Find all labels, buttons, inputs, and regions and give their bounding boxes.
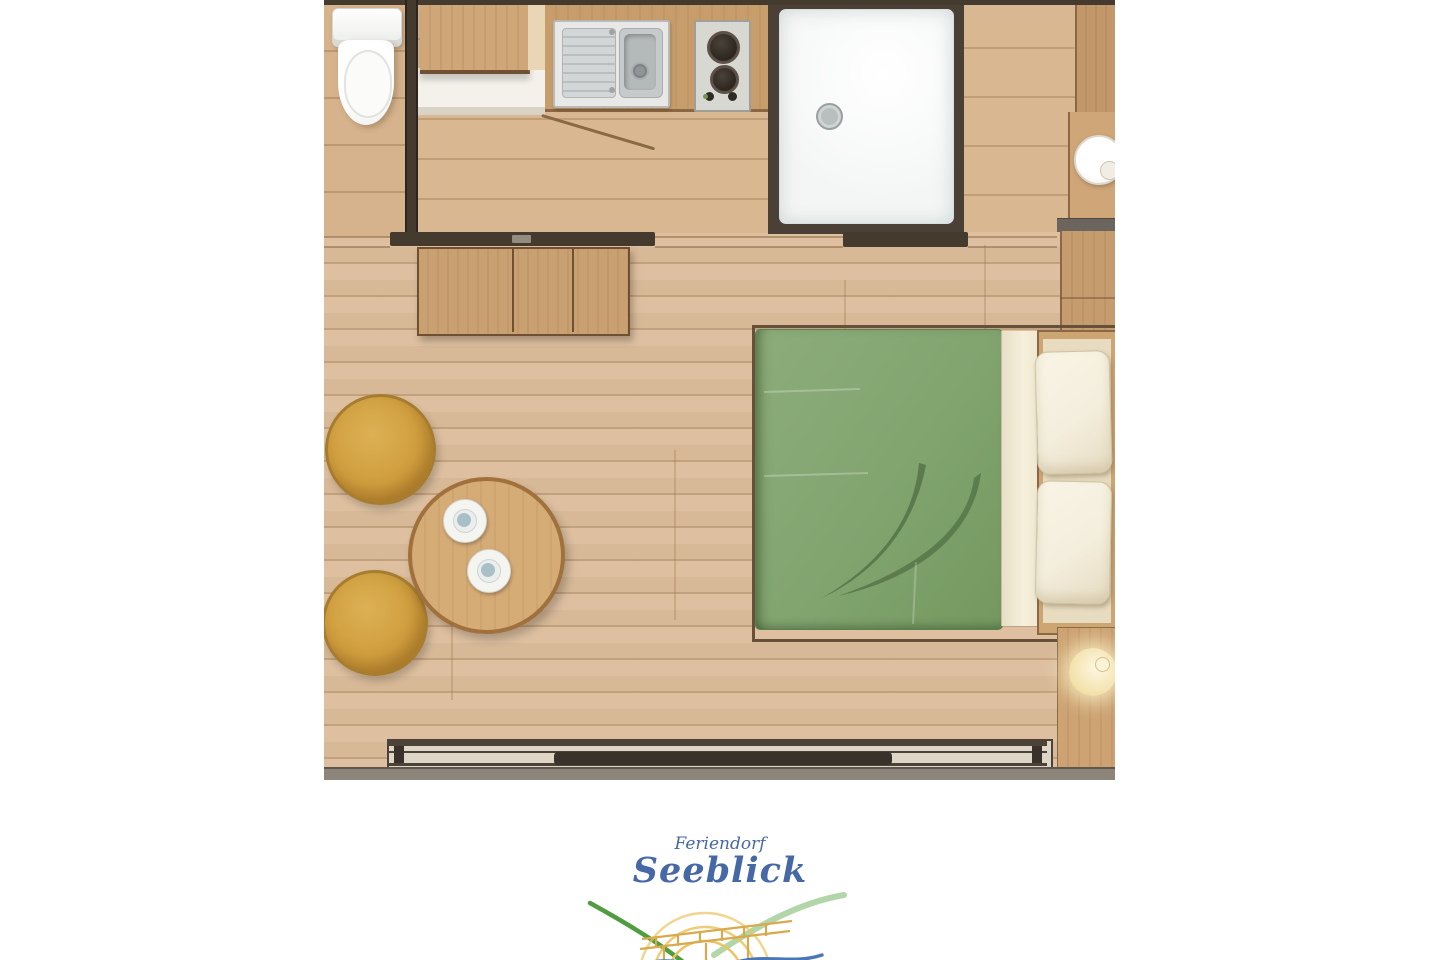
dressing-area-floor: [964, 0, 1076, 232]
doorway-threshold: [655, 236, 843, 248]
window-rail: [389, 741, 1047, 746]
logo-graphic: [582, 889, 862, 960]
table-lamp: [1069, 648, 1115, 696]
sideboard-divider: [512, 247, 514, 332]
sink-screw: [609, 29, 615, 35]
coffee-cup: [467, 549, 511, 593]
logo-brand-line2: Seeblick: [633, 850, 807, 891]
cup: [477, 559, 501, 583]
bathroom-cabinet: [420, 0, 530, 74]
toilet-seat: [344, 50, 392, 118]
sliding-door-track: [512, 235, 531, 243]
cabinet-divider: [1060, 297, 1115, 299]
wardrobe: [1075, 0, 1115, 115]
coffee-cup: [443, 499, 487, 543]
cooktop-burner-small: [710, 65, 739, 94]
sink-drainboard: [562, 28, 616, 98]
bed-duvet: [755, 329, 1003, 630]
washbasin-cup: [1100, 161, 1115, 180]
cup-liquid: [457, 513, 471, 527]
cup: [453, 509, 477, 533]
window-lock: [394, 746, 404, 763]
sink-screw: [609, 87, 615, 93]
shower-drain: [816, 103, 843, 130]
terrace-edge: [324, 767, 1115, 780]
partition-wall-segment: [1057, 218, 1115, 232]
doorway-threshold: [324, 236, 390, 248]
duvet-leaf-motif: [756, 330, 1002, 629]
window-lock: [1032, 746, 1042, 763]
cooktop-burner-large: [707, 31, 740, 64]
entry-mat-edge: [418, 107, 545, 115]
pouf: [324, 570, 428, 676]
shower-tray: [779, 9, 954, 224]
pillow: [1035, 480, 1113, 605]
bed-sheet-fold: [1001, 331, 1038, 626]
page: Feriendorf Seeblick: [0, 0, 1440, 960]
bedside-cabinet: [1060, 231, 1115, 330]
sink-drain: [631, 62, 649, 80]
exterior-wall-top: [324, 0, 1115, 5]
doorway-threshold: [968, 236, 1057, 248]
lamp-switch: [1095, 657, 1110, 672]
sliding-panel-bar: [554, 752, 892, 765]
floor-plank-seam: [674, 450, 676, 620]
partition-wall-right: [843, 232, 968, 247]
floor-plan: [324, 0, 1115, 780]
sideboard-divider: [572, 247, 574, 332]
cooktop-indicator: [703, 94, 708, 99]
cup-liquid: [481, 563, 495, 577]
pillow: [1034, 350, 1112, 475]
sideboard: [417, 247, 630, 336]
pouf: [325, 394, 436, 505]
bathroom-wall: [405, 0, 418, 239]
cooktop-knob: [728, 92, 737, 101]
cabinet-gap: [528, 0, 545, 70]
